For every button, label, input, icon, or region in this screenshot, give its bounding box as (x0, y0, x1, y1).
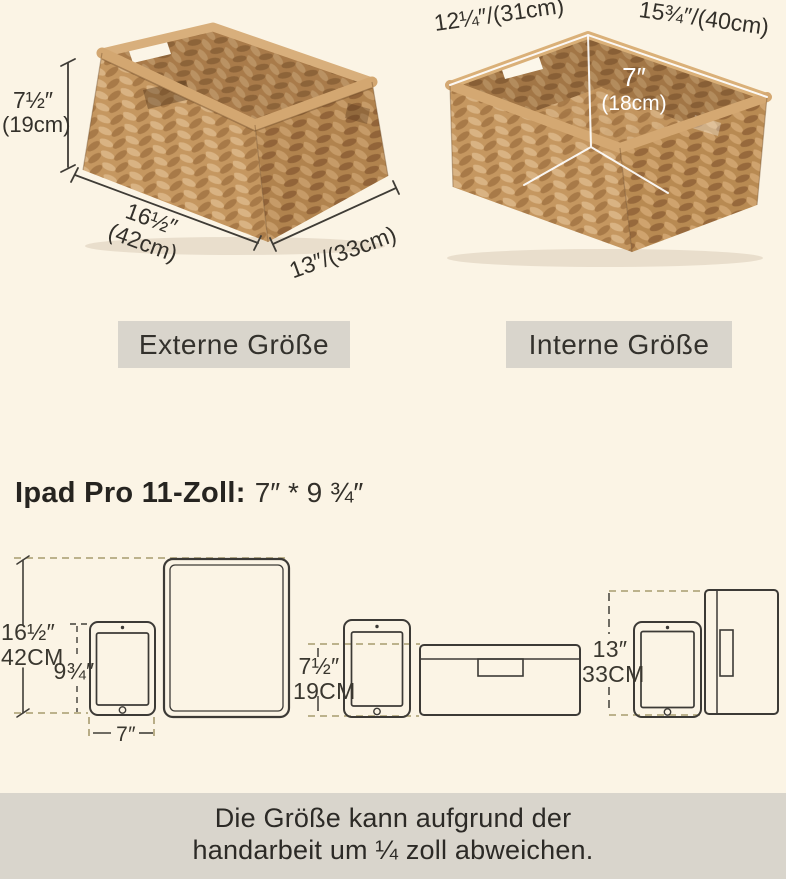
basket-handle-outline (720, 630, 733, 676)
height-inches: 7½″ (2, 88, 64, 113)
internal-height-cm: (18cm) (594, 92, 674, 115)
basket-height-cm: 19CM (293, 679, 345, 704)
basket-height-inches: 7½″ (293, 654, 345, 679)
internal-height-dimension: 7″ (18cm) (594, 63, 674, 115)
ipad-front-drawing (90, 622, 155, 715)
basket-front-outline (164, 559, 289, 717)
internal-height-inches: 7″ (594, 63, 674, 92)
external-height-dimension: 7½″ (19cm) (2, 88, 64, 137)
ipad-height-value: 9¾″ (49, 659, 99, 684)
ipad-size-heading: Ipad Pro 11-Zoll:7″ * 9 ¾″ (15, 477, 363, 510)
ipad-camera-dot (121, 626, 124, 629)
ipad-home-button (119, 707, 125, 713)
size-disclaimer-banner: Die Größe kann aufgrund der handarbeit u… (0, 793, 786, 879)
basket-width-cm: 42CM (1, 645, 55, 670)
disclaimer-line-1: Die Größe kann aufgrund der (0, 802, 786, 834)
disclaimer-line-2: handarbeit um ¼ zoll abweichen. (0, 834, 786, 866)
basket-depth-inches: 13″ (582, 637, 638, 662)
ipad-width-value: 7″ (107, 722, 145, 747)
dimension-linework-overlay (0, 0, 786, 879)
ipad-heading-product: Ipad Pro 11-Zoll: (15, 477, 246, 509)
ipad-home-button (664, 709, 670, 715)
internal-size-label: Interne Größe (506, 321, 732, 368)
diagram-basket-depth-dimension: 13″ 33CM (582, 637, 638, 687)
diagram-basket-width-dimension: 16½″ 42CM (1, 620, 55, 670)
internal-size-label-text: Interne Größe (529, 329, 710, 361)
diagram-basket-height-dimension: 7½″ 19CM (293, 654, 345, 704)
ipad-heading-size: 7″ * 9 ¾″ (255, 477, 364, 508)
diagram-ipad-width-dimension: 7″ (107, 722, 145, 747)
basket-rotated-outline (705, 590, 778, 714)
external-size-label: Externe Größe (118, 321, 350, 368)
ipad-home-button (374, 708, 380, 714)
ipad-camera-dot (666, 626, 669, 629)
basket-depth-cm: 33CM (582, 662, 638, 687)
height-cm: (19cm) (2, 113, 64, 137)
basket-width-inches: 16½″ (1, 620, 55, 645)
ipad-camera-dot (375, 625, 378, 628)
basket-handle-outline (478, 659, 523, 676)
external-size-label-text: Externe Größe (139, 329, 329, 361)
product-dimension-infographic: 7½″ (19cm) 16½″ (42cm) 13″/(33cm) 12¼″/(… (0, 0, 786, 879)
diagram-ipad-height-dimension: 9¾″ (49, 659, 99, 684)
basket-side-outline (420, 645, 580, 715)
